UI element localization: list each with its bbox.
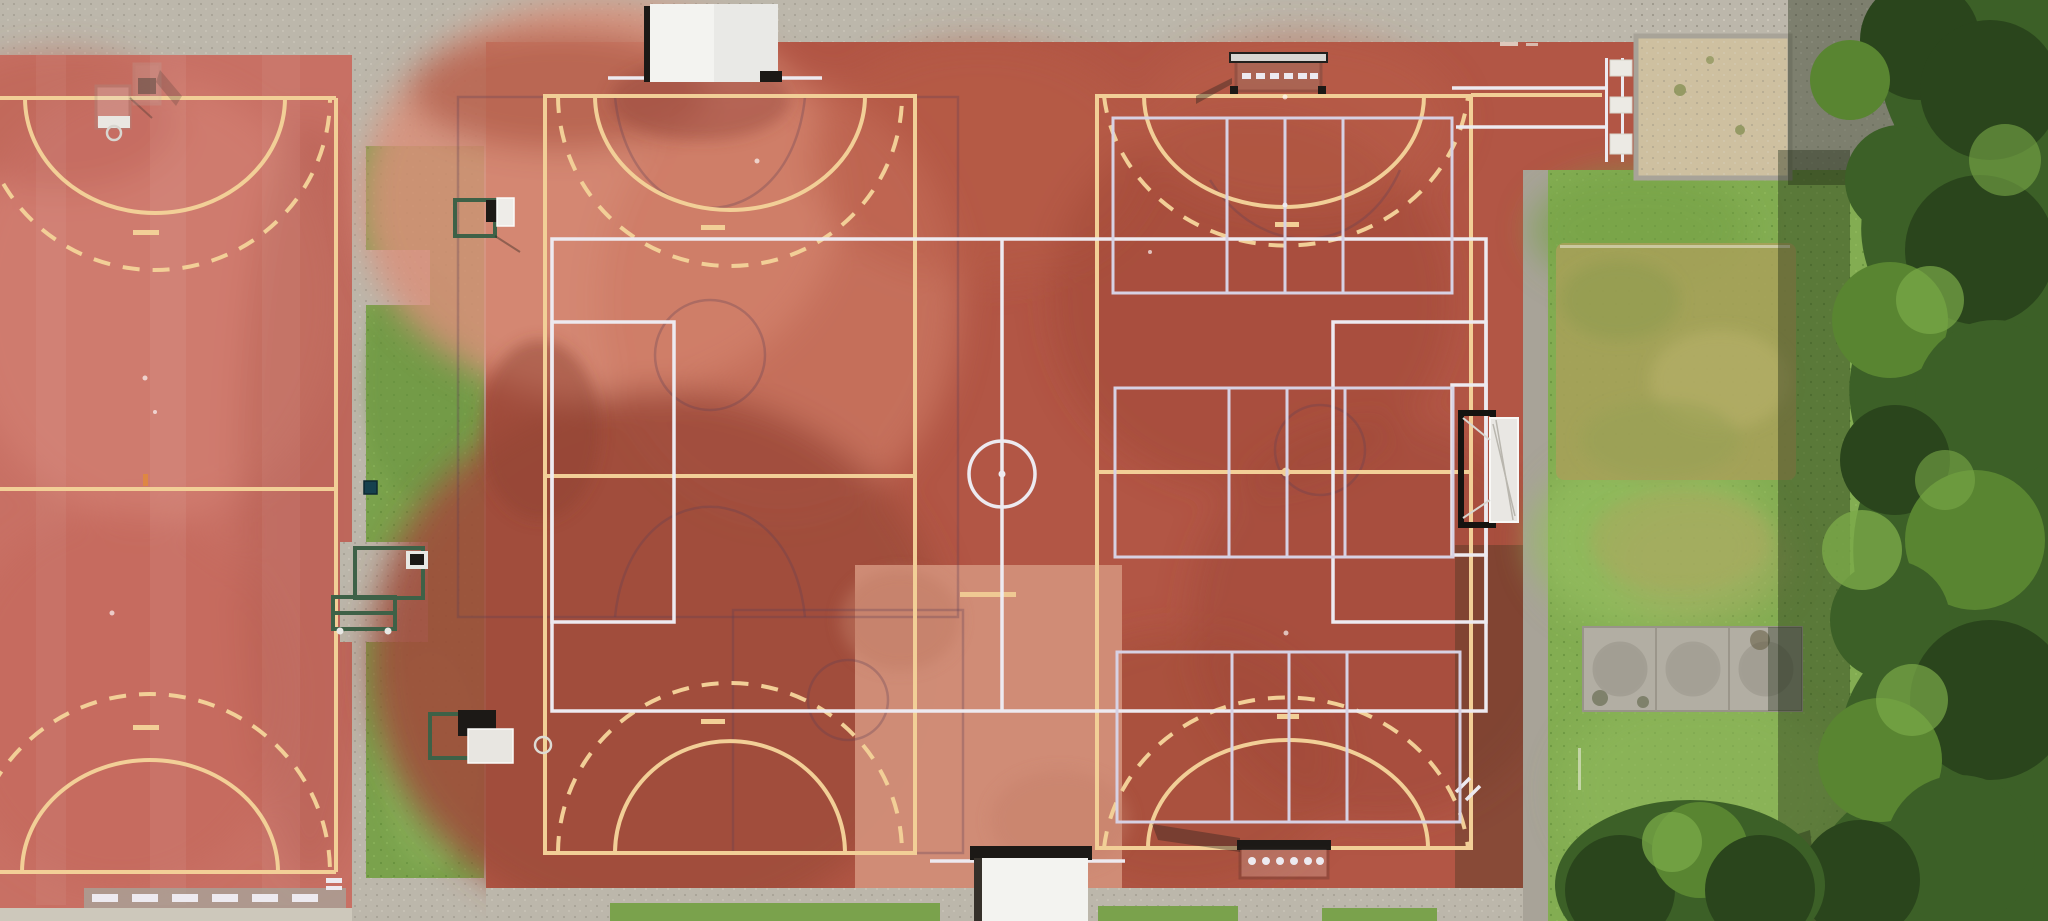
dry-tan-patch	[1636, 36, 1790, 178]
penalty-mark-bottom	[133, 725, 159, 730]
bottom-concrete-edge	[0, 908, 358, 921]
spare-yellow-mark	[960, 592, 1016, 597]
aerial-photo	[0, 0, 2048, 921]
white-shed-roof-top	[644, 4, 782, 82]
ground	[0, 0, 2048, 921]
left-court-surface	[0, 50, 380, 921]
concrete-pads-with-circles	[1583, 627, 1802, 711]
penalty-mark-top	[133, 230, 159, 235]
trash-bin	[364, 481, 377, 494]
small-orange-mark	[143, 474, 148, 486]
tree-shadow-on-court	[1455, 545, 1533, 893]
sports-complex-scene	[0, 0, 2048, 921]
faded-line-on-grass	[1578, 748, 1581, 790]
white-shed-bottom	[970, 846, 1092, 921]
